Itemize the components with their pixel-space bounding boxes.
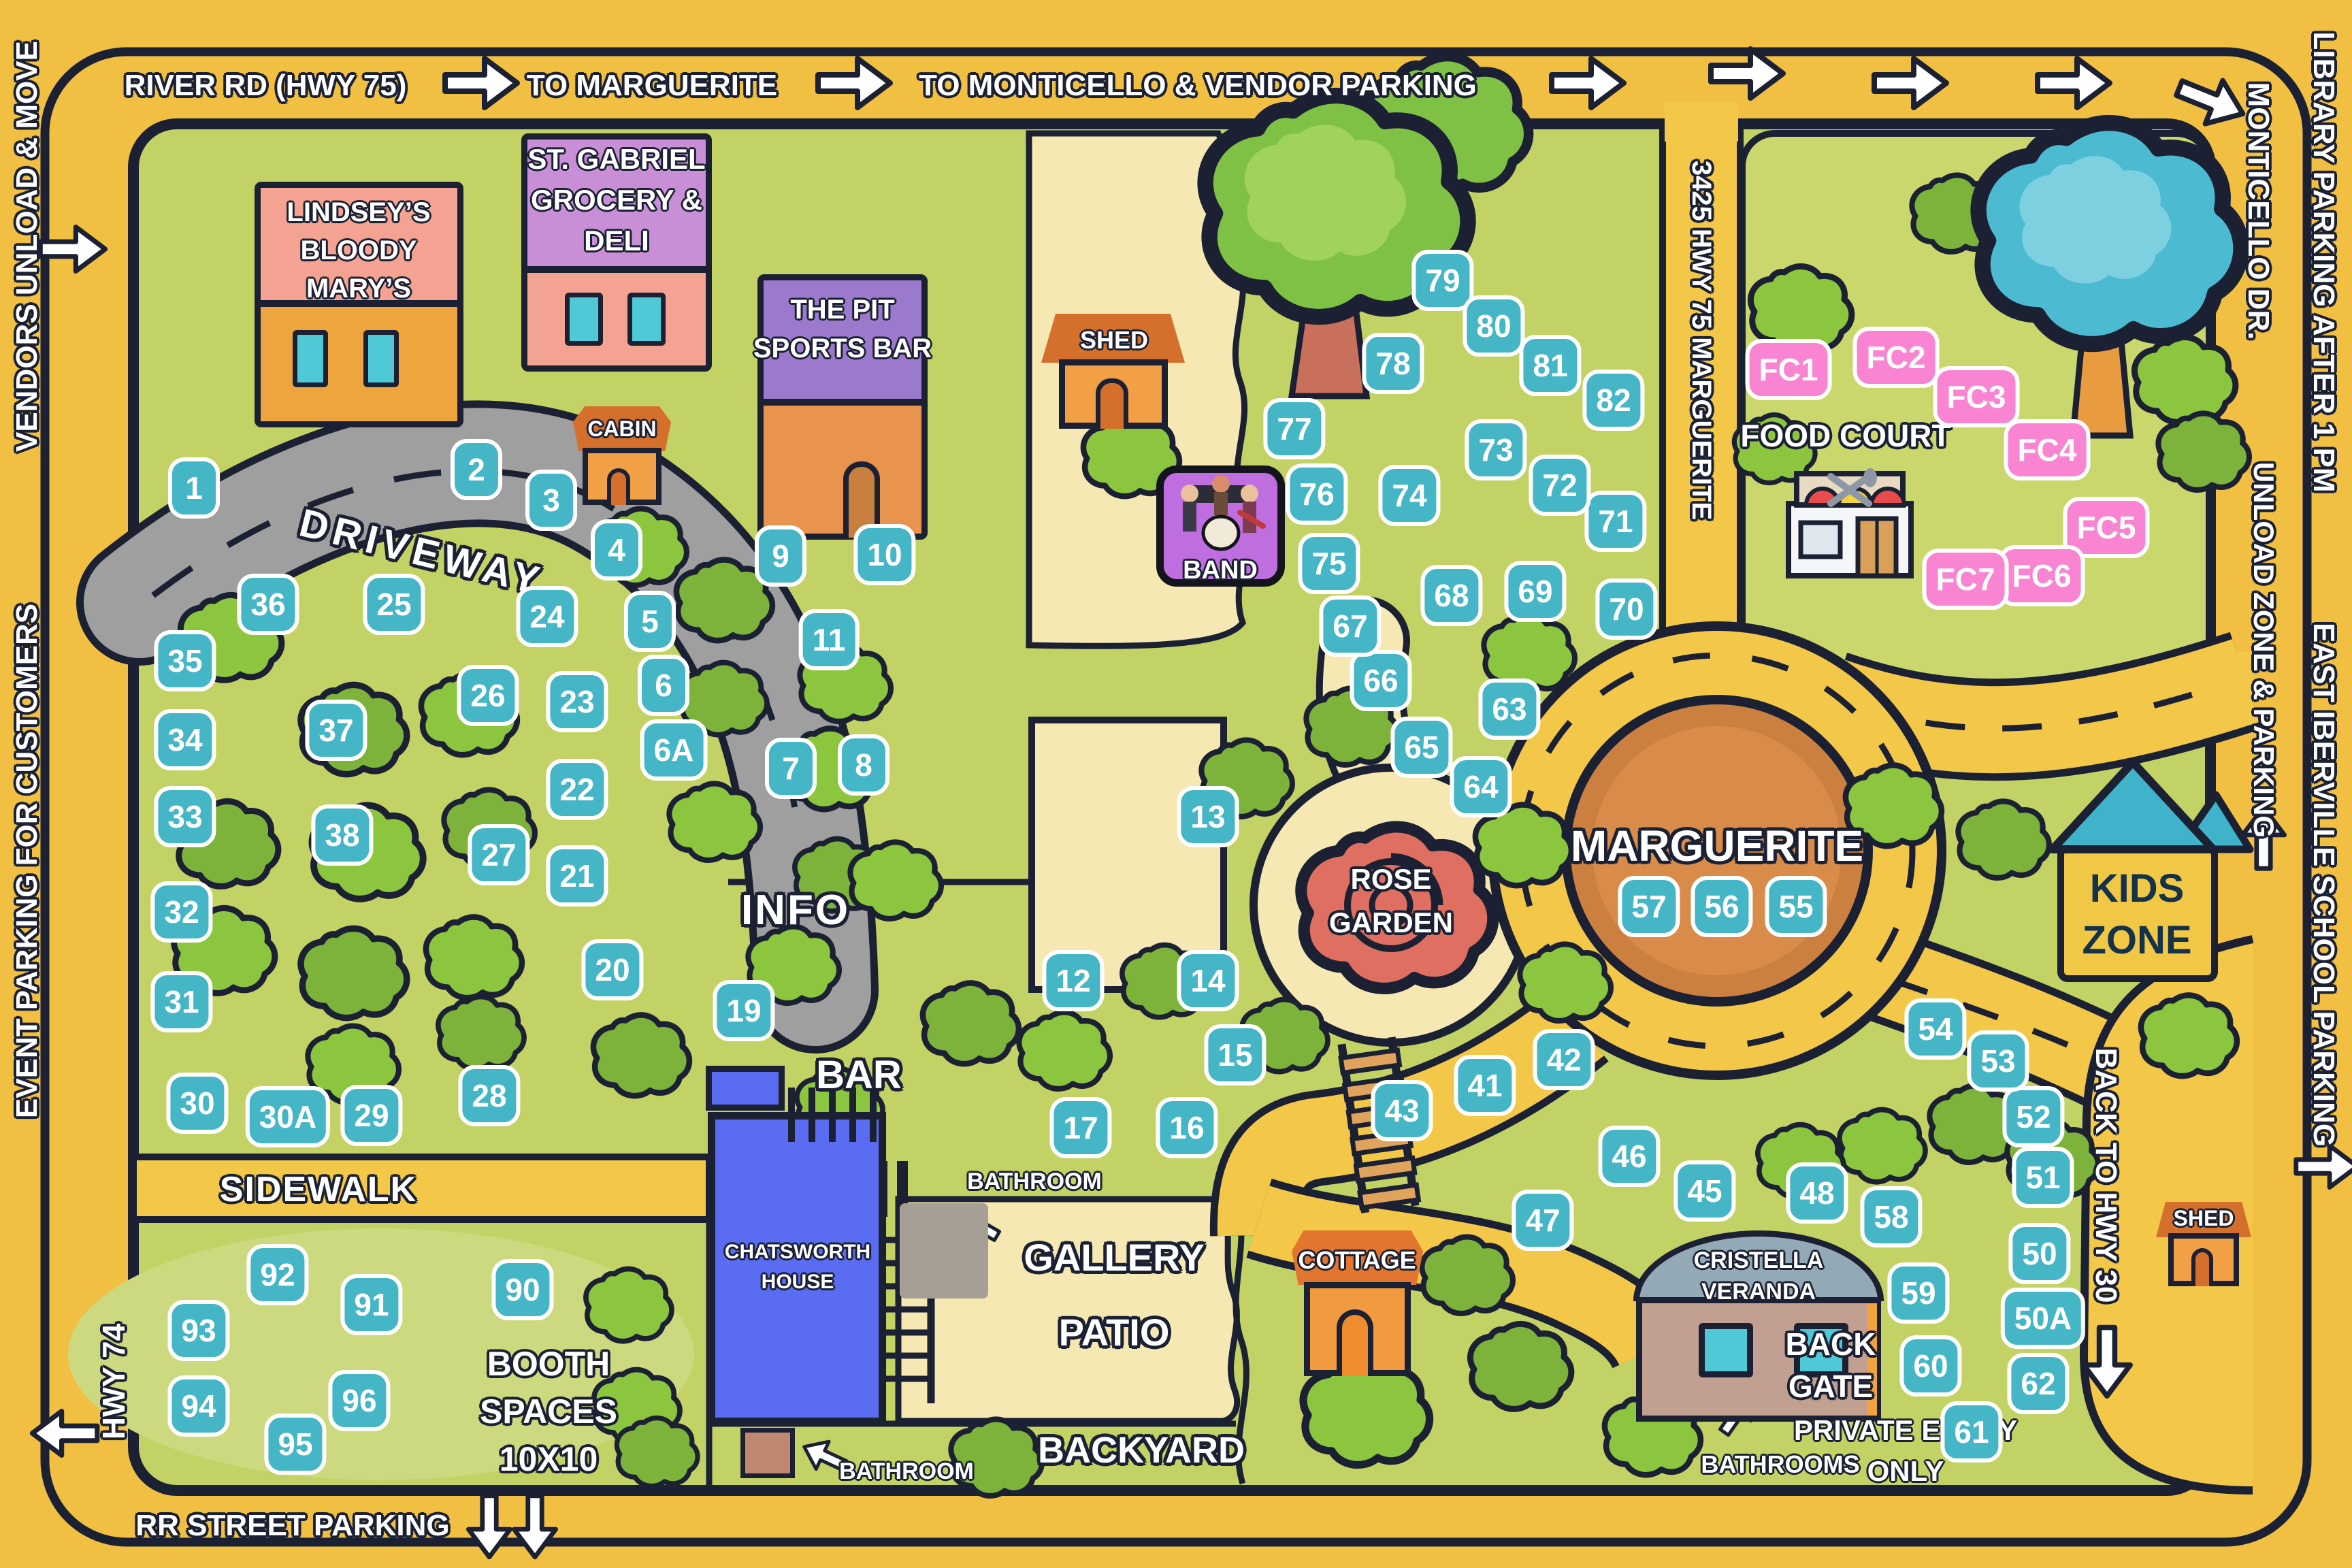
booth-badge-26: 26 [457, 665, 519, 726]
festival-site-map: RIVER RD (HWY 75) TO MARGUERITE TO MONTI… [0, 0, 2352, 1568]
booth-badge-72: 72 [1529, 455, 1590, 516]
booth-badge-25: 25 [363, 574, 425, 635]
booth-badge-7: 7 [765, 738, 817, 799]
booth-badge-33: 33 [154, 786, 216, 847]
booth-badge-60: 60 [1899, 1335, 1961, 1396]
booth-badge-94: 94 [167, 1375, 229, 1437]
booth-badge-91: 91 [340, 1274, 402, 1335]
booth-badge-54: 54 [1904, 998, 1966, 1060]
booth-badge-6: 6 [638, 655, 689, 716]
booth-badge-5: 5 [624, 591, 676, 652]
booth-badge-70: 70 [1595, 578, 1657, 640]
booth-badge-42: 42 [1533, 1029, 1595, 1090]
booth-badge-76: 76 [1286, 463, 1347, 525]
booth-badge-6A: 6A [640, 719, 708, 781]
booth-badge-66: 66 [1350, 650, 1411, 711]
booth-badge-95: 95 [264, 1414, 326, 1475]
booth-badge-2: 2 [451, 439, 502, 500]
food-court-badge-FC4: FC4 [2004, 419, 2091, 480]
booth-badge-77: 77 [1263, 398, 1325, 459]
booth-badge-71: 71 [1584, 491, 1646, 552]
booth-badge-17: 17 [1049, 1097, 1111, 1158]
booth-badge-65: 65 [1390, 717, 1452, 778]
booth-badge-50: 50 [2008, 1223, 2070, 1284]
booth-badge-22: 22 [546, 759, 608, 820]
booth-badge-46: 46 [1598, 1126, 1660, 1187]
food-court-badge-FC6: FC6 [1999, 545, 2085, 606]
booth-badge-30: 30 [166, 1073, 228, 1134]
booth-badge-29: 29 [340, 1085, 402, 1146]
booth-badge-37: 37 [305, 700, 367, 761]
booth-badge-21: 21 [546, 845, 608, 906]
food-court-badge-FC2: FC2 [1853, 327, 1940, 388]
booth-badge-38: 38 [311, 804, 373, 866]
booth-badge-57: 57 [1618, 876, 1680, 937]
booth-badge-13: 13 [1177, 786, 1239, 847]
booth-badge-34: 34 [154, 709, 216, 770]
booth-badge-19: 19 [713, 980, 774, 1041]
food-court-badge-FC7: FC7 [1923, 549, 2009, 610]
food-court-badge-FC3: FC3 [1933, 366, 2020, 427]
badges-layer: 1234566A78910111213141516171920212223242… [0, 0, 2352, 1568]
booth-badge-69: 69 [1504, 561, 1566, 622]
booth-badge-24: 24 [516, 586, 578, 647]
booth-badge-61: 61 [1940, 1401, 2002, 1463]
booth-badge-16: 16 [1156, 1097, 1218, 1158]
booth-badge-51: 51 [2012, 1147, 2074, 1208]
booth-badge-74: 74 [1378, 465, 1440, 526]
booth-badge-14: 14 [1177, 950, 1239, 1011]
booth-badge-79: 79 [1411, 250, 1473, 311]
booth-badge-35: 35 [154, 630, 216, 691]
booth-badge-47: 47 [1512, 1190, 1573, 1251]
booth-badge-56: 56 [1690, 876, 1752, 937]
booth-badge-67: 67 [1319, 595, 1381, 657]
booth-badge-20: 20 [581, 939, 643, 1000]
booth-badge-75: 75 [1298, 533, 1360, 594]
booth-badge-10: 10 [853, 524, 915, 585]
booth-badge-93: 93 [167, 1300, 229, 1361]
booth-badge-48: 48 [1786, 1162, 1848, 1224]
booth-badge-31: 31 [150, 971, 212, 1032]
booth-badge-90: 90 [491, 1259, 553, 1320]
booth-badge-53: 53 [1967, 1030, 2029, 1092]
booth-badge-59: 59 [1887, 1262, 1949, 1324]
booth-badge-62: 62 [2007, 1353, 2069, 1414]
booth-badge-68: 68 [1420, 565, 1482, 626]
booth-badge-41: 41 [1454, 1055, 1516, 1116]
booth-badge-28: 28 [458, 1065, 520, 1126]
booth-badge-30A: 30A [246, 1086, 330, 1147]
food-court-badge-FC1: FC1 [1746, 339, 1832, 400]
booth-badge-9: 9 [755, 525, 806, 587]
booth-badge-81: 81 [1519, 335, 1581, 396]
booth-badge-15: 15 [1204, 1024, 1266, 1085]
booth-badge-43: 43 [1371, 1080, 1433, 1141]
booth-badge-12: 12 [1042, 950, 1104, 1011]
booth-badge-92: 92 [246, 1244, 308, 1305]
booth-badge-50A: 50A [2001, 1288, 2085, 1349]
booth-badge-82: 82 [1582, 370, 1644, 431]
booth-badge-45: 45 [1673, 1160, 1735, 1222]
booth-badge-8: 8 [838, 734, 889, 796]
booth-badge-52: 52 [2002, 1086, 2064, 1147]
booth-badge-3: 3 [525, 470, 577, 531]
booth-badge-1: 1 [168, 457, 220, 519]
booth-badge-23: 23 [546, 671, 608, 732]
booth-badge-80: 80 [1463, 295, 1524, 357]
booth-badge-63: 63 [1478, 679, 1540, 740]
booth-badge-58: 58 [1860, 1186, 1922, 1247]
booth-badge-36: 36 [237, 574, 299, 635]
booth-badge-4: 4 [591, 519, 642, 581]
booth-badge-96: 96 [328, 1370, 390, 1431]
booth-badge-27: 27 [468, 824, 529, 885]
booth-badge-55: 55 [1765, 876, 1827, 937]
booth-badge-73: 73 [1465, 419, 1526, 480]
booth-badge-32: 32 [150, 881, 212, 943]
booth-badge-64: 64 [1450, 756, 1512, 817]
booth-badge-78: 78 [1362, 333, 1424, 394]
booth-badge-11: 11 [799, 609, 860, 670]
